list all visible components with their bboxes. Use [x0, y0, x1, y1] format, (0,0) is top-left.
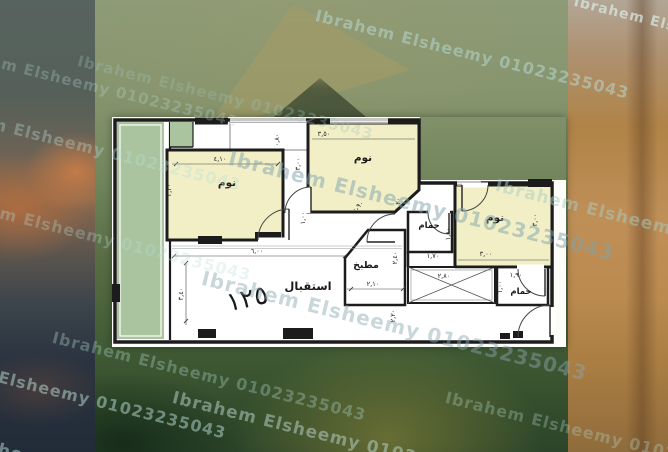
dim-reception-height: ٣,٤٠ [177, 288, 185, 301]
background-right-strip [568, 0, 668, 452]
bedroom-1-label: نوم [218, 177, 236, 189]
stair-shaft [408, 267, 495, 303]
dim-bedroom1-height: ٣,٢٠ [165, 184, 173, 197]
bedroom-2-label: نوم [354, 152, 372, 164]
dim-bedroom3-height: ٣,٠٠ [531, 214, 539, 227]
dim-bedroom1-width: ٤,١٠ [214, 155, 227, 163]
dim-passage-height: ٢,٢٠ [389, 310, 397, 323]
bathroom-2-label: حمام [510, 287, 531, 297]
bathroom-2-room [497, 267, 548, 305]
background-left-strip [0, 0, 95, 452]
dim-reception-width: ٦,٠٠ [251, 247, 264, 255]
dim-bathroom1-width: ١,٧٠ [427, 252, 440, 260]
dim-bathroom1-height: ١,٨٠ [444, 228, 452, 241]
bedroom-1-room [167, 150, 283, 240]
dim-kitchen-width: ٢,١٠ [367, 280, 380, 288]
dim-lobby-width: ١,٢٠ [394, 198, 402, 211]
dim-kitchen-height: ٢,٤٠ [391, 252, 399, 265]
bathroom-1-label: حمام [418, 221, 439, 231]
screenshot-root: نوم نوم نوم مطبخ حمام حمام استقبال ١٢٥ ٦… [0, 0, 668, 452]
dim-bathroom2-height: ١,٠٠ [496, 281, 504, 294]
floor-plan-sheet: نوم نوم نوم مطبخ حمام حمام استقبال ١٢٥ ٦… [112, 117, 566, 347]
dim-bathroom2-width: ١,٩٠ [510, 271, 523, 279]
bedroom-3-label: نوم [486, 212, 504, 224]
kitchen-label: مطبخ [353, 260, 379, 271]
floor-plan: نوم نوم نوم مطبخ حمام حمام استقبال ١٢٥ ٦… [112, 117, 566, 347]
dim-corridor2-width: ١,٠٠ [299, 212, 307, 225]
niche [230, 121, 308, 150]
reception-label: استقبال [284, 279, 331, 293]
dim-hall-width: ٢,٨٠ [438, 272, 451, 280]
dim-bedroom2-width: ٣,٥٠ [318, 130, 331, 138]
dim-niche-depth: ٠,٨٠ [273, 134, 281, 147]
dim-bedroom2-height: ٣,٠٠ [294, 158, 302, 171]
dim-bedroom3-width: ٣,٠٠ [480, 250, 493, 258]
